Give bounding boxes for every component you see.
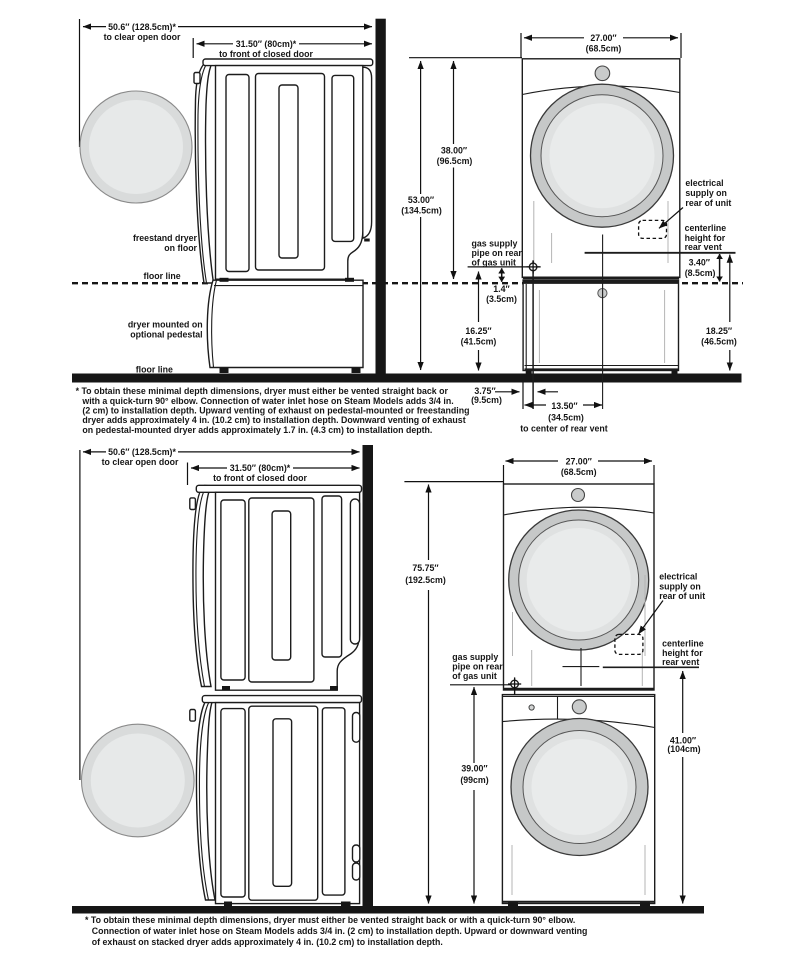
- svg-text:floor line: floor line: [144, 271, 181, 281]
- svg-text:50.6″ (128.5cm)*: 50.6″ (128.5cm)*: [108, 22, 176, 32]
- svg-text:dryer adds approximately 4 in.: dryer adds approximately 4 in. (10.2 cm)…: [82, 415, 465, 425]
- svg-text:(8.5cm): (8.5cm): [685, 268, 716, 278]
- svg-text:to center of rear vent: to center of rear vent: [520, 424, 608, 434]
- svg-text:freestand dryer: freestand dryer: [133, 233, 198, 243]
- svg-text:on pedestal-mounted dryer adds: on pedestal-mounted dryer adds approxima…: [82, 425, 432, 435]
- svg-text:13.50″: 13.50″: [551, 401, 578, 411]
- svg-text:1.4″: 1.4″: [493, 284, 510, 294]
- svg-text:75.75″: 75.75″: [412, 563, 439, 573]
- svg-text:rear vent: rear vent: [685, 242, 722, 252]
- svg-text:electrical: electrical: [659, 571, 697, 581]
- svg-text:53.00″: 53.00″: [408, 195, 435, 205]
- svg-text:(3.5cm): (3.5cm): [486, 294, 517, 304]
- svg-text:31.50″ (80cm)*: 31.50″ (80cm)*: [230, 463, 291, 473]
- svg-text:rear of unit: rear of unit: [659, 591, 705, 601]
- svg-text:31.50″ (80cm)*: 31.50″ (80cm)*: [236, 39, 297, 49]
- svg-text:(34.5cm): (34.5cm): [548, 413, 584, 423]
- svg-text:(46.5cm): (46.5cm): [701, 337, 737, 347]
- svg-text:50.6″ (128.5cm)*: 50.6″ (128.5cm)*: [108, 447, 176, 457]
- svg-text:(41.5cm): (41.5cm): [461, 337, 497, 347]
- svg-text:(134.5cm): (134.5cm): [401, 206, 442, 216]
- svg-text:(68.5cm): (68.5cm): [561, 467, 597, 477]
- svg-text:rear vent: rear vent: [662, 657, 699, 667]
- svg-text:floor line: floor line: [136, 364, 173, 374]
- svg-text:with a quick-turn 90° elbow. C: with a quick-turn 90° elbow. Connection …: [81, 396, 453, 406]
- svg-text:optional pedestal: optional pedestal: [130, 330, 202, 340]
- svg-text:39.00″: 39.00″: [461, 764, 488, 774]
- svg-text:to front of closed door: to front of closed door: [213, 473, 307, 483]
- svg-text:(192.5cm): (192.5cm): [405, 575, 446, 585]
- svg-text:of gas unit: of gas unit: [472, 258, 517, 268]
- svg-text:dryer mounted on: dryer mounted on: [128, 320, 203, 330]
- svg-text:pipe on rear: pipe on rear: [452, 661, 503, 671]
- svg-text:rear of unit: rear of unit: [685, 198, 731, 208]
- svg-text:27.00″: 27.00″: [566, 456, 593, 466]
- svg-text:3.40″: 3.40″: [689, 258, 711, 268]
- svg-text:of gas unit: of gas unit: [452, 671, 497, 681]
- svg-text:Connection of water inlet hose: Connection of water inlet hose on Steam …: [92, 926, 588, 936]
- svg-text:* To obtain these minimal dept: * To obtain these minimal depth dimensio…: [85, 915, 575, 925]
- svg-text:to clear open door: to clear open door: [104, 32, 181, 42]
- svg-text:electrical: electrical: [685, 178, 723, 188]
- svg-text:pipe on rear: pipe on rear: [472, 248, 523, 258]
- svg-text:(104cm): (104cm): [667, 744, 700, 754]
- svg-text:(96.5cm): (96.5cm): [437, 156, 473, 166]
- svg-text:supply on: supply on: [659, 581, 701, 591]
- svg-text:(99cm): (99cm): [460, 775, 488, 785]
- svg-text:centerline: centerline: [685, 223, 727, 233]
- svg-text:16.25″: 16.25″: [465, 326, 492, 336]
- svg-text:supply on: supply on: [685, 188, 727, 198]
- svg-text:38.00″: 38.00″: [441, 146, 468, 156]
- svg-text:18.25″: 18.25″: [706, 326, 733, 336]
- svg-text:gas supply: gas supply: [472, 238, 518, 248]
- svg-text:(2 cm) to installation depth.: (2 cm) to installation depth. Upward ven…: [82, 406, 469, 416]
- svg-text:(9.5cm): (9.5cm): [471, 395, 502, 405]
- svg-text:(68.5cm): (68.5cm): [586, 44, 622, 54]
- svg-text:to front of closed door: to front of closed door: [219, 49, 313, 59]
- svg-text:* To obtain these minimal dept: * To obtain these minimal depth dimensio…: [76, 386, 449, 396]
- svg-text:on floor: on floor: [164, 243, 197, 253]
- svg-text:to clear open door: to clear open door: [102, 457, 179, 467]
- svg-text:of exhaust on stacked dryer ad: of exhaust on stacked dryer adds approxi…: [92, 937, 443, 947]
- svg-text:gas supply: gas supply: [452, 652, 498, 662]
- svg-text:27.00″: 27.00″: [590, 33, 617, 43]
